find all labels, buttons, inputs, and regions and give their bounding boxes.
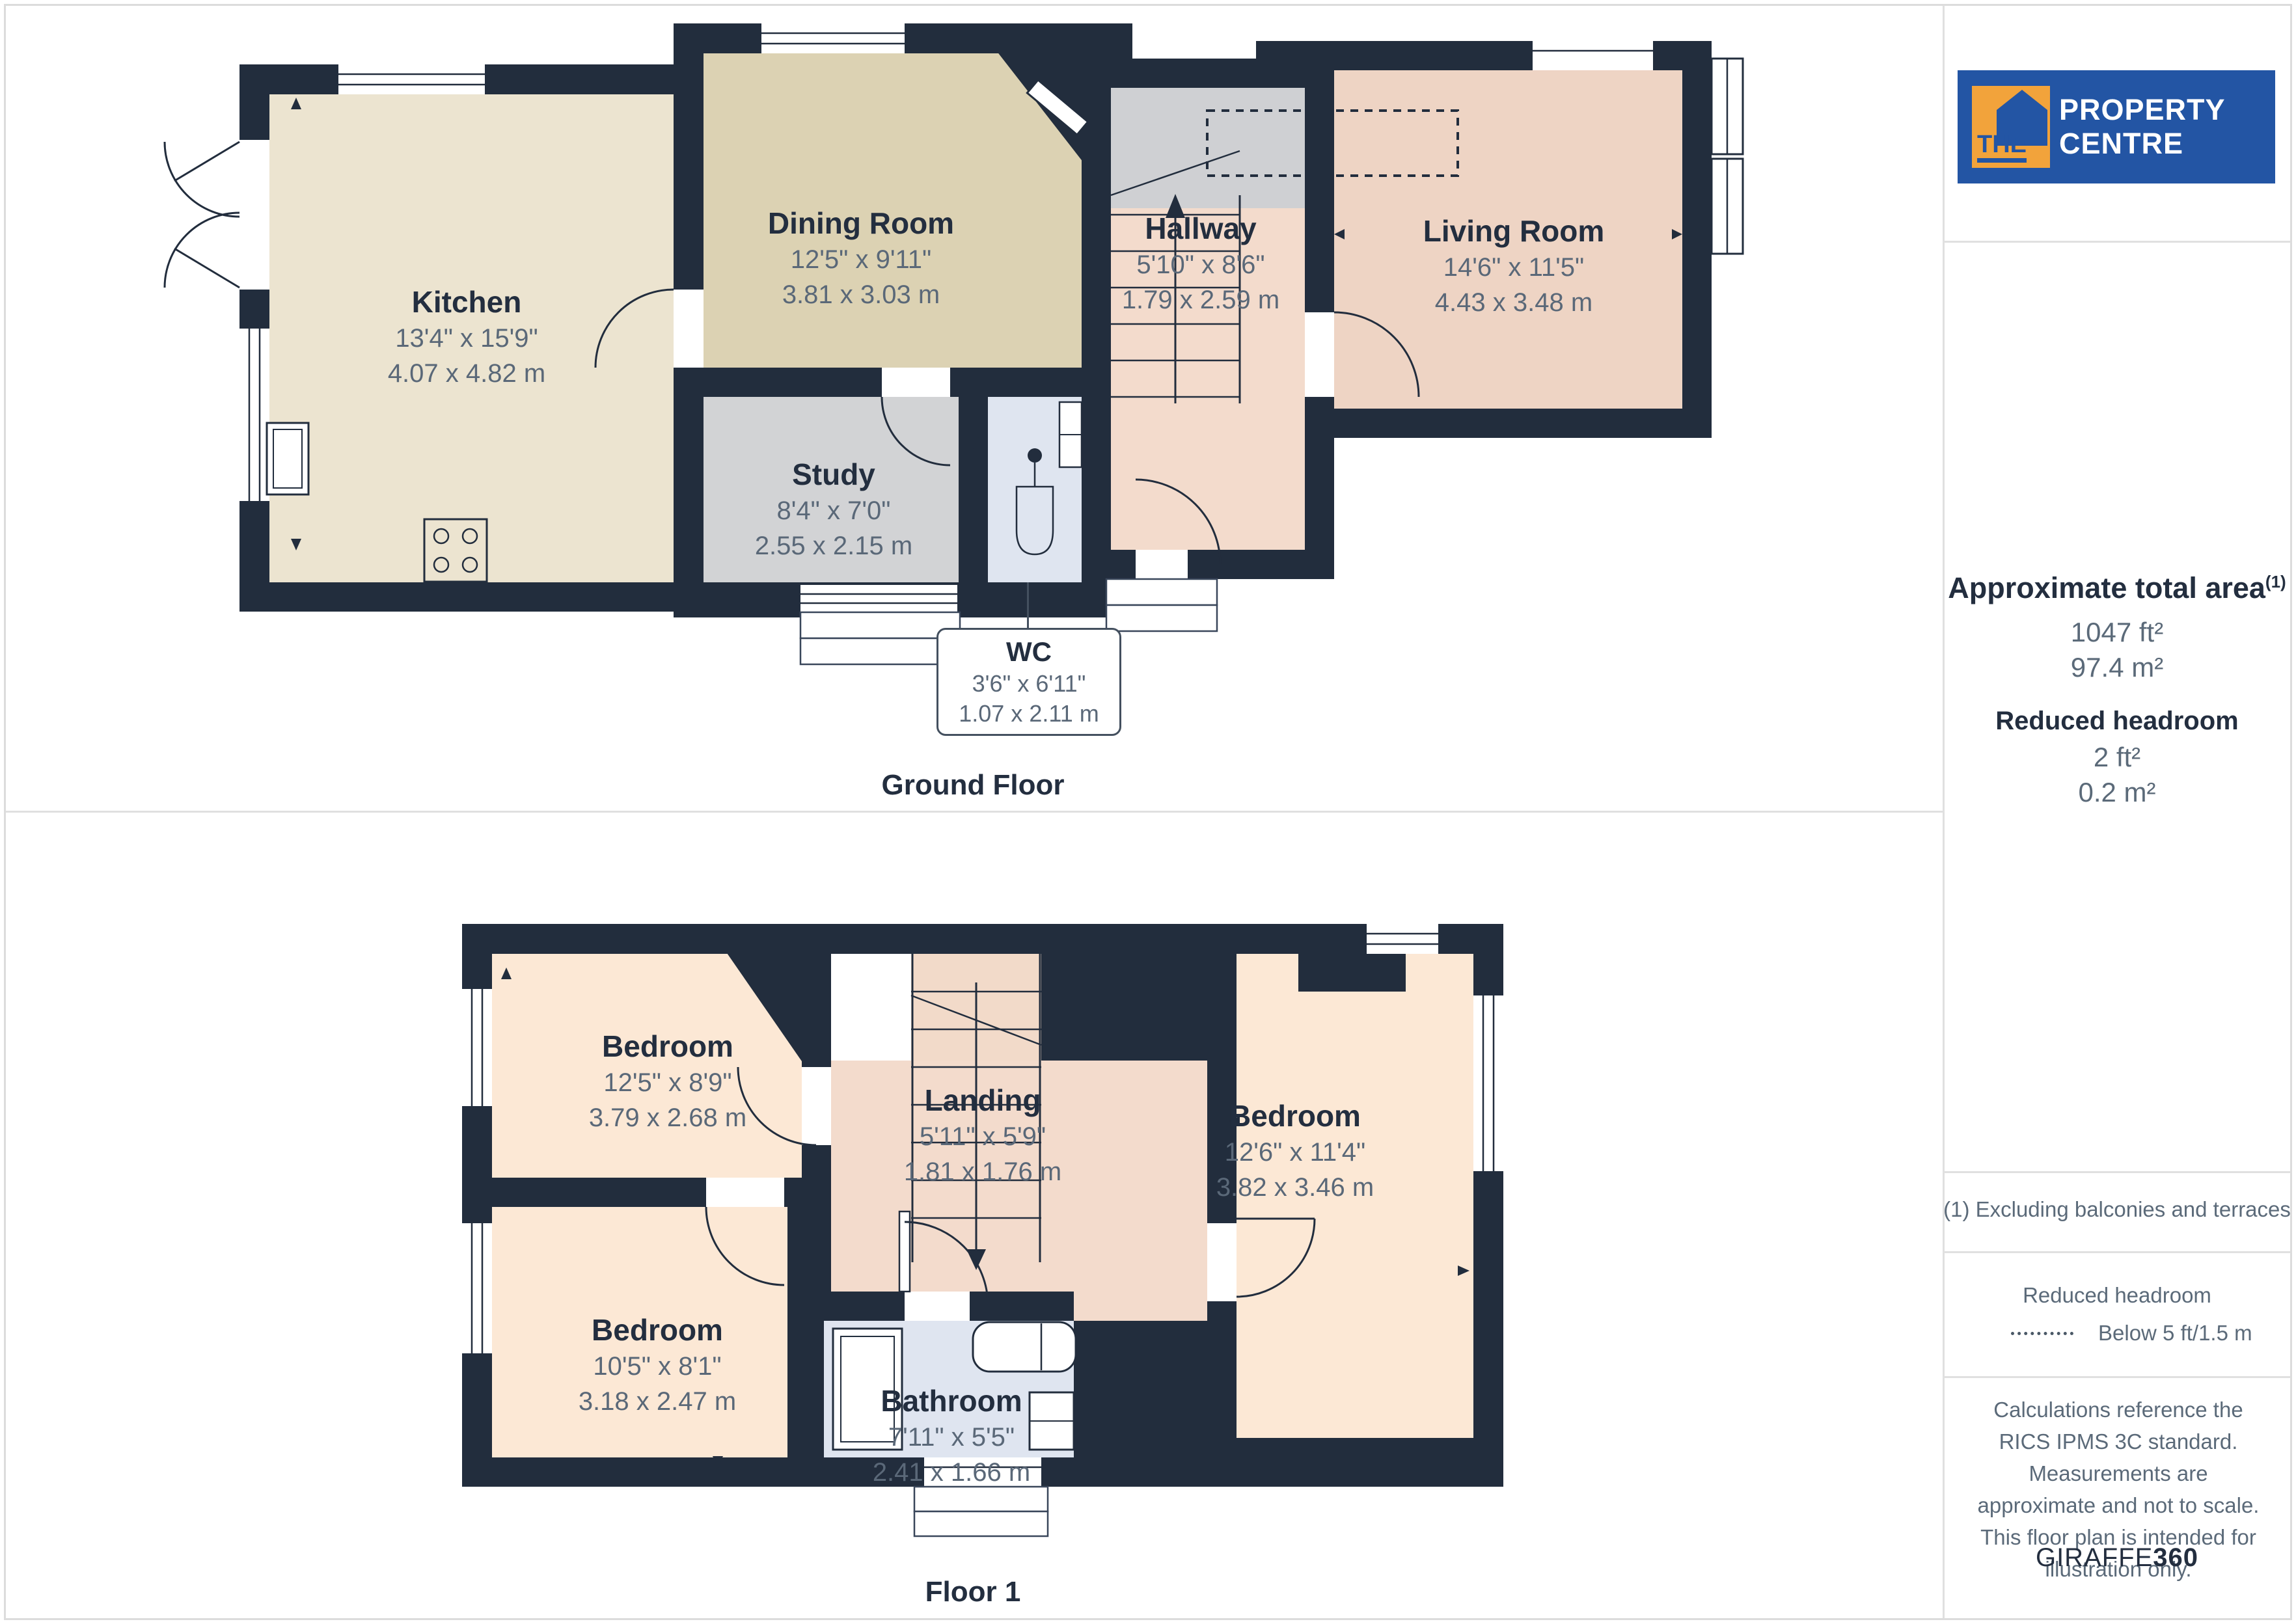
label-wc-callout: WC 3'6" x 6'11" 1.07 x 2.11 m — [936, 628, 1121, 736]
bathroom-top-wall — [824, 1292, 1074, 1321]
legend-title: Reduced headroom — [2023, 1283, 2211, 1308]
area-sqft-value: 1047 ft² — [2071, 617, 2163, 648]
label-study: Study 8'4" x 7'0" 2.55 x 2.15 m — [755, 455, 912, 563]
legend-value: Below 5 ft/1.5 m — [2098, 1321, 2252, 1346]
label-bedroom-2: Bedroom 12'6" x 11'4" 3.82 x 3.46 m — [1216, 1097, 1374, 1205]
label-living-room: Living Room 14'6" x 11'5" 4.43 x 3.48 m — [1423, 212, 1605, 320]
logo-orange-block: THE — [1972, 86, 2050, 168]
area-title: Approximate total area(1) — [1948, 571, 2286, 605]
floor1-caption: Floor 1 — [925, 1576, 1021, 1608]
reduced-sqft-value: 2 ft² — [2094, 742, 2140, 773]
area-sqm-value: 97.4 m² — [2071, 652, 2163, 683]
label-bedroom-3: Bedroom 10'5" x 8'1" 3.18 x 2.47 m — [579, 1311, 736, 1419]
reduced-sqm-value: 0.2 m² — [2078, 777, 2155, 808]
sidebar-section-divider-3 — [1945, 1251, 2292, 1253]
label-hallway: Hallway 5'10" x 8'6" 1.79 x 2.59 m — [1122, 210, 1279, 318]
wc-callout-pointer — [1027, 582, 1029, 628]
agency-logo: THE PROPERTY CENTRE — [1958, 70, 2275, 183]
sidebar-section-divider-1 — [1945, 241, 2292, 243]
label-kitchen: Kitchen 13'4" x 15'9" 4.07 x 4.82 m — [388, 283, 545, 391]
label-landing: Landing 5'11" x 5'9" 1.81 x 1.76 m — [904, 1081, 1061, 1189]
sidebar-section-divider-4 — [1945, 1376, 2292, 1378]
floorplan-page: Kitchen 13'4" x 15'9" 4.07 x 4.82 m Dini… — [0, 0, 2296, 1624]
label-bedroom-1: Bedroom 12'5" x 8'9" 3.79 x 2.68 m — [589, 1027, 746, 1135]
legend-row: Below 5 ft/1.5 m — [2011, 1321, 2252, 1346]
label-dining-room: Dining Room 12'5" x 9'11" 3.81 x 3.03 m — [768, 204, 954, 312]
sidebar-section-divider-2 — [1945, 1171, 2292, 1173]
logo-wordmark: PROPERTY CENTRE — [2059, 93, 2275, 161]
hallway-stairwell-gray — [1111, 88, 1305, 208]
label-bathroom: Bathroom 7'11" x 5'5" 2.41 x 1.66 m — [873, 1382, 1030, 1490]
logo-the-text: THE — [1977, 131, 2027, 163]
reduced-headroom-title: Reduced headroom — [1995, 707, 2238, 736]
giraffe360-logo: GIRAFFE360 — [2036, 1543, 2198, 1573]
ground-floor-caption: Ground Floor — [881, 769, 1064, 802]
footnote-text: (1) Excluding balconies and terraces — [1943, 1197, 2291, 1222]
room-wc — [988, 397, 1082, 582]
area-footnote-marker: (1) — [2265, 572, 2286, 591]
dotted-line-icon — [2011, 1332, 2073, 1335]
main-divider — [4, 811, 1943, 813]
bedroom-2-notch — [1298, 954, 1406, 992]
